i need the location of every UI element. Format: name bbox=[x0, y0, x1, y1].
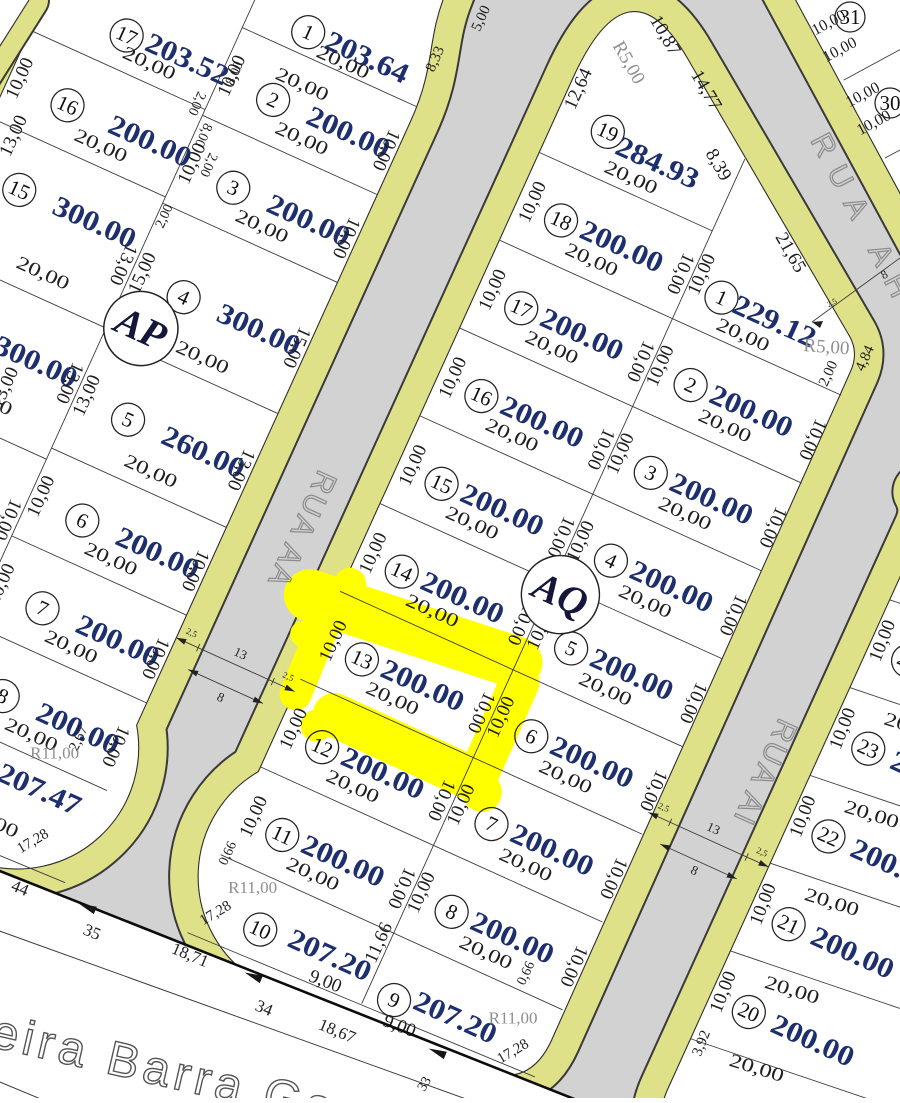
svg-text:R5,00: R5,00 bbox=[803, 335, 850, 359]
svg-text:R11,00: R11,00 bbox=[30, 743, 79, 762]
svg-text:R11,00: R11,00 bbox=[228, 878, 277, 897]
svg-text:R11,00: R11,00 bbox=[489, 1008, 538, 1027]
